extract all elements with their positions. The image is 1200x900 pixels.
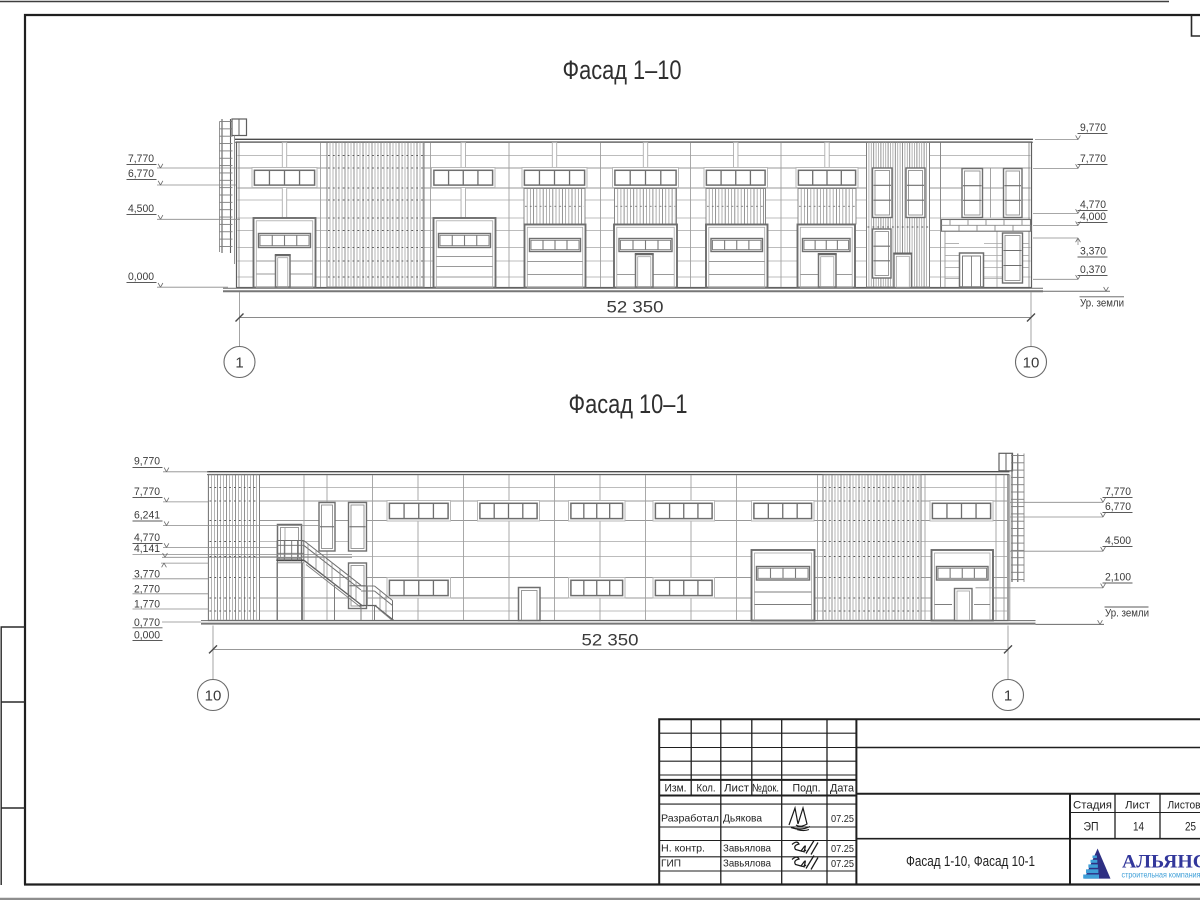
svg-text:4,141: 4,141 bbox=[134, 543, 160, 555]
svg-text:Фасад 10–1: Фасад 10–1 bbox=[569, 389, 688, 419]
svg-text:ГИП: ГИП bbox=[661, 858, 681, 870]
svg-text:Н. контр.: Н. контр. bbox=[661, 843, 705, 855]
svg-text:2,100: 2,100 bbox=[1105, 572, 1131, 584]
svg-text:14: 14 bbox=[1133, 822, 1145, 834]
svg-text:9,770: 9,770 bbox=[134, 456, 160, 468]
svg-text:№док.: №док. bbox=[752, 783, 779, 795]
svg-text:Кол.: Кол. bbox=[697, 783, 716, 795]
svg-text:07.25: 07.25 bbox=[831, 813, 854, 825]
svg-text:Подп.: Подп. bbox=[793, 783, 821, 795]
svg-text:Дата: Дата bbox=[830, 783, 855, 795]
svg-text:Дьякова: Дьякова bbox=[723, 813, 762, 825]
svg-text:ЭП: ЭП bbox=[1084, 822, 1099, 834]
svg-text:строительная компания: строительная компания bbox=[1122, 870, 1200, 880]
svg-text:25: 25 bbox=[1185, 822, 1196, 834]
svg-text:0,000: 0,000 bbox=[134, 630, 160, 642]
svg-text:Разработал: Разработал bbox=[661, 813, 719, 825]
svg-text:10: 10 bbox=[205, 688, 222, 705]
svg-text:Листов: Листов bbox=[1168, 800, 1200, 812]
svg-text:52 350: 52 350 bbox=[582, 631, 639, 650]
svg-text:Стадия: Стадия bbox=[1073, 800, 1112, 812]
svg-text:3,370: 3,370 bbox=[1080, 246, 1106, 258]
svg-text:Ур. земли: Ур. земли bbox=[1105, 608, 1149, 620]
svg-text:1: 1 bbox=[235, 355, 243, 372]
svg-text:Лист: Лист bbox=[1125, 800, 1150, 812]
svg-text:0,370: 0,370 bbox=[1080, 264, 1106, 276]
svg-text:Завьялова: Завьялова bbox=[723, 843, 771, 855]
svg-text:7,770: 7,770 bbox=[134, 486, 160, 498]
svg-text:9,770: 9,770 bbox=[1080, 122, 1106, 134]
svg-text:07.25: 07.25 bbox=[831, 858, 854, 870]
svg-text:0,770: 0,770 bbox=[134, 617, 160, 629]
svg-text:0,000: 0,000 bbox=[128, 271, 154, 283]
svg-text:Фасад 1-10, Фасад 10-1: Фасад 1-10, Фасад 10-1 bbox=[906, 854, 1035, 870]
svg-text:52 350: 52 350 bbox=[607, 298, 664, 317]
svg-text:7,770: 7,770 bbox=[128, 153, 154, 165]
svg-text:4,770: 4,770 bbox=[1080, 199, 1106, 211]
svg-text:10: 10 bbox=[1023, 355, 1040, 372]
svg-text:7,770: 7,770 bbox=[1080, 153, 1106, 165]
svg-text:4,500: 4,500 bbox=[1105, 535, 1131, 547]
svg-text:Лист: Лист bbox=[724, 783, 749, 795]
svg-text:07.25: 07.25 bbox=[831, 843, 854, 855]
svg-text:Фасад 1–10: Фасад 1–10 bbox=[563, 55, 682, 85]
svg-text:6,241: 6,241 bbox=[134, 510, 160, 522]
svg-text:6,770: 6,770 bbox=[128, 168, 154, 180]
svg-text:Изм.: Изм. bbox=[665, 783, 687, 795]
svg-text:Завьялова: Завьялова bbox=[723, 858, 771, 870]
svg-text:7,770: 7,770 bbox=[1105, 486, 1131, 498]
svg-text:4,500: 4,500 bbox=[128, 203, 154, 215]
svg-text:4,000: 4,000 bbox=[1080, 211, 1106, 223]
svg-text:1: 1 bbox=[1004, 688, 1012, 705]
svg-text:6,770: 6,770 bbox=[1105, 501, 1131, 513]
svg-text:Ур. земли: Ур. земли bbox=[1080, 298, 1124, 310]
